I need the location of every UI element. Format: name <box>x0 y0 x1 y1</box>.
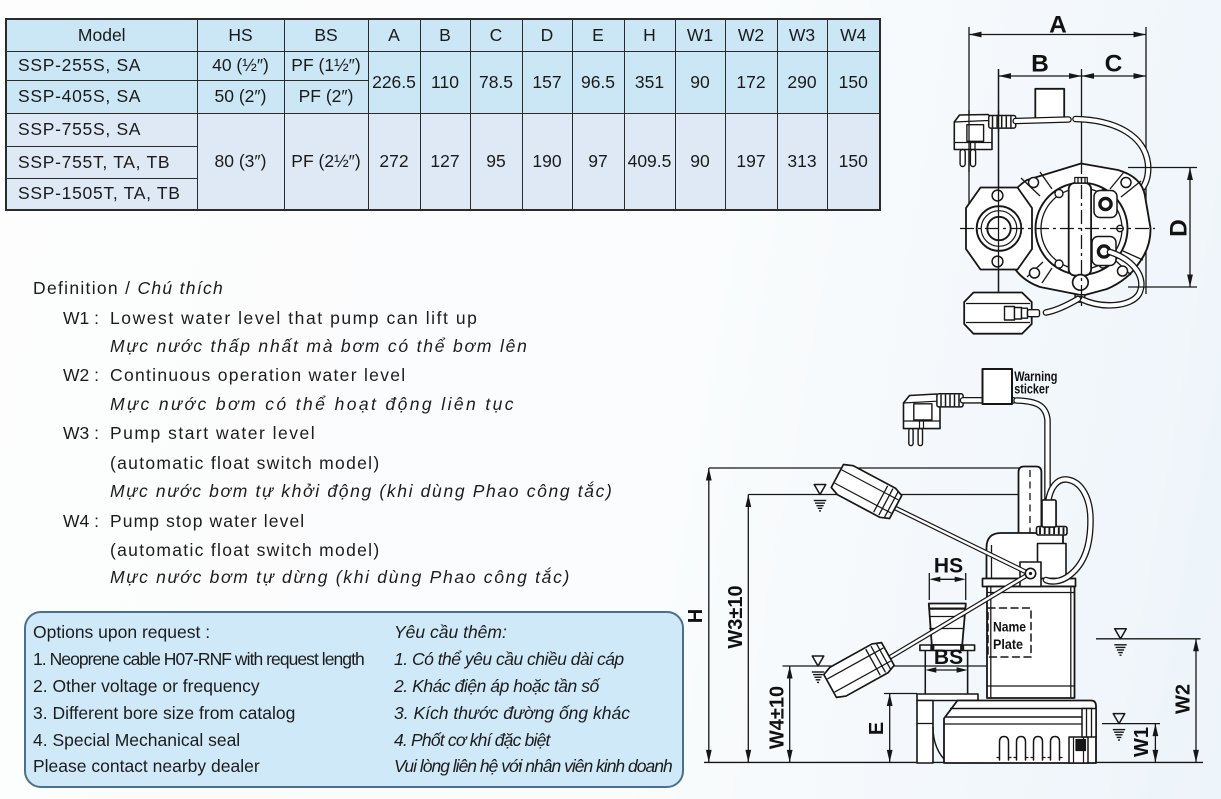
svg-text:B: B <box>1031 50 1049 77</box>
svg-text:HS: HS <box>934 555 963 578</box>
svg-text:sticker: sticker <box>1014 381 1049 397</box>
svg-text:BS: BS <box>934 646 963 669</box>
svg-text:W4±10: W4±10 <box>766 686 788 749</box>
svg-text:W3±10: W3±10 <box>725 585 747 648</box>
svg-text:E: E <box>866 722 888 735</box>
svg-text:H: H <box>685 609 707 623</box>
svg-text:W1: W1 <box>1131 727 1153 757</box>
svg-text:Name: Name <box>993 620 1026 635</box>
svg-text:A: A <box>1049 11 1067 38</box>
svg-text:Plate: Plate <box>993 637 1023 652</box>
svg-text:W2: W2 <box>1172 684 1194 714</box>
svg-text:D: D <box>1165 219 1192 237</box>
svg-text:C: C <box>1105 50 1123 77</box>
